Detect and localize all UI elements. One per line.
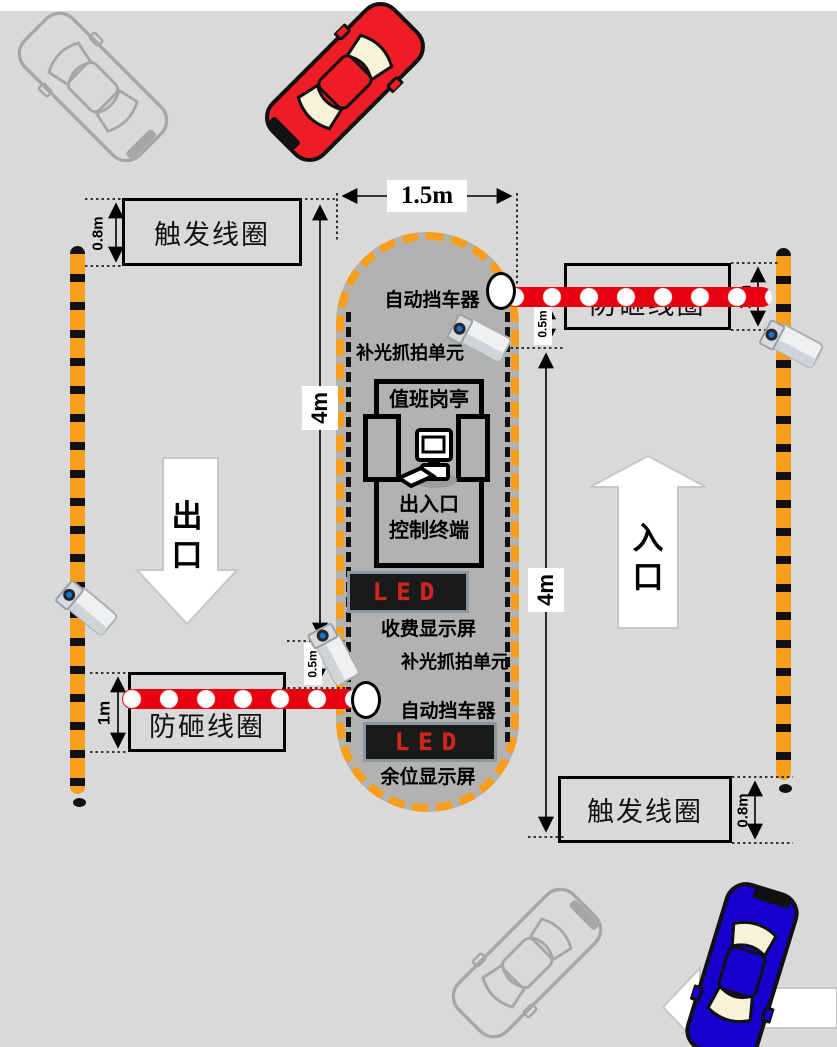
capture-unit-bottom-label: 补光抓拍单元 bbox=[390, 648, 520, 674]
trigger-coil-top-label: 触发线圈 bbox=[154, 213, 270, 252]
dim-lane-width: 1.5m bbox=[387, 180, 467, 212]
dim-trigger-top-depth: 0.8m bbox=[86, 206, 110, 260]
dim-anti-smash-left-depth: 1m bbox=[92, 688, 116, 738]
dim-trigger-bottom-depth: 0.8m bbox=[731, 782, 755, 838]
trigger-coil-box-top: 触发线圈 bbox=[122, 198, 302, 266]
road-lane-line bbox=[0, 0, 837, 11]
car-blue bbox=[676, 874, 809, 1047]
fee-display-label: 收费显示屏 bbox=[336, 614, 521, 641]
terminal-label: 出入口 控制终端 bbox=[366, 492, 492, 544]
dim-right-lane-length: 4m bbox=[528, 568, 564, 612]
fee-led-text: LED bbox=[373, 578, 443, 606]
anti-smash-coil-left-label: 防砸线圈 bbox=[149, 705, 265, 744]
parking-gate-diagram: 触发线圈 防砸线圈 防砸线圈 触发线圈 值班岗亭 出入口 控制终端 LED 收费… bbox=[0, 0, 837, 1047]
barrier-pivot-entrance bbox=[486, 272, 516, 310]
cctv-camera-icon-post-right bbox=[754, 312, 828, 378]
vacancy-led-text: LED bbox=[395, 728, 465, 756]
trigger-coil-bottom-label: 触发线圈 bbox=[587, 790, 703, 829]
post-right-end-dot bbox=[779, 784, 792, 793]
auto-barrier-bottom-label: 自动挡车器 bbox=[390, 696, 506, 723]
barrier-arm-exit bbox=[122, 689, 358, 709]
car-outline-bottom bbox=[437, 873, 617, 1047]
fee-led-display: LED bbox=[347, 571, 469, 613]
car-outline-top-left bbox=[3, 0, 183, 177]
dim-barrier-offset-right: 0.5m bbox=[534, 303, 552, 345]
cctv-camera-icon-post-left bbox=[49, 573, 123, 645]
entrance-label: 入口 bbox=[630, 520, 666, 598]
duty-booth-label: 值班岗亭 bbox=[374, 383, 484, 412]
car-red bbox=[252, 0, 439, 175]
trigger-coil-box-bottom: 触发线圈 bbox=[558, 776, 732, 843]
barrier-pivot-exit bbox=[351, 681, 381, 719]
auto-barrier-top-label: 自动挡车器 bbox=[372, 285, 492, 312]
island-edge-dash-right bbox=[505, 312, 510, 742]
anti-smash-coil-box-left: 防砸线圈 bbox=[128, 672, 286, 752]
terminal-line1: 出入口 bbox=[366, 492, 492, 518]
terminal-line2: 控制终端 bbox=[366, 518, 492, 544]
exit-label: 出口 bbox=[169, 498, 205, 576]
computer-icon bbox=[395, 428, 465, 490]
vacancy-led-display: LED bbox=[363, 722, 497, 762]
post-left-end-dot bbox=[73, 798, 86, 807]
dim-left-lane-length: 4m bbox=[302, 386, 338, 430]
vacancy-display-label: 余位显示屏 bbox=[348, 762, 508, 789]
barrier-arm-entrance bbox=[505, 287, 772, 307]
boundary-post-left bbox=[70, 246, 85, 794]
